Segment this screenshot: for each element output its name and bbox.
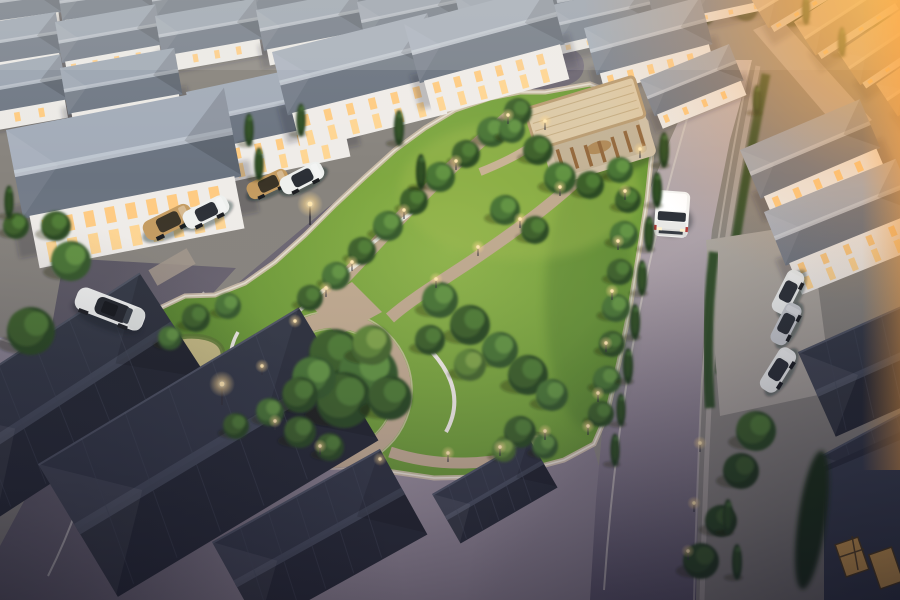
atmosphere-overlays <box>0 0 900 600</box>
estate-render-canvas <box>0 0 900 600</box>
vignette-bottom-right <box>0 0 900 600</box>
estate-render <box>0 0 900 600</box>
